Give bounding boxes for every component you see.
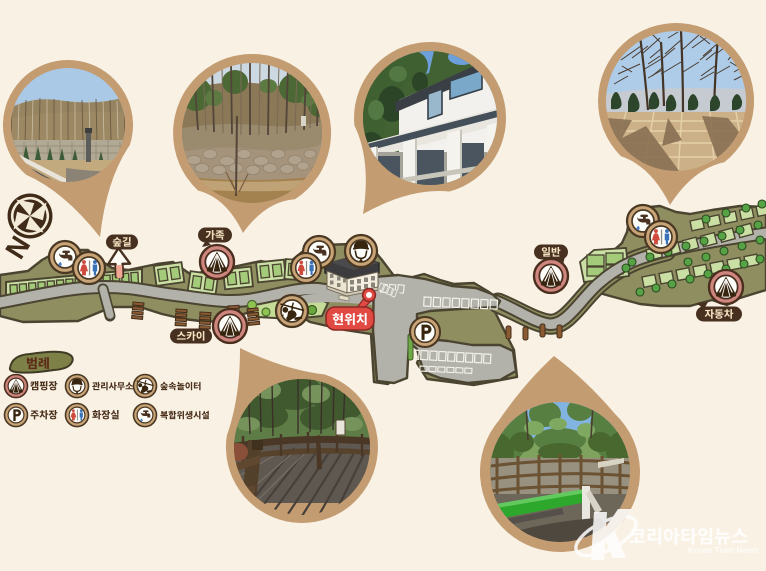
svg-text:Korea Time News: Korea Time News (688, 545, 759, 555)
